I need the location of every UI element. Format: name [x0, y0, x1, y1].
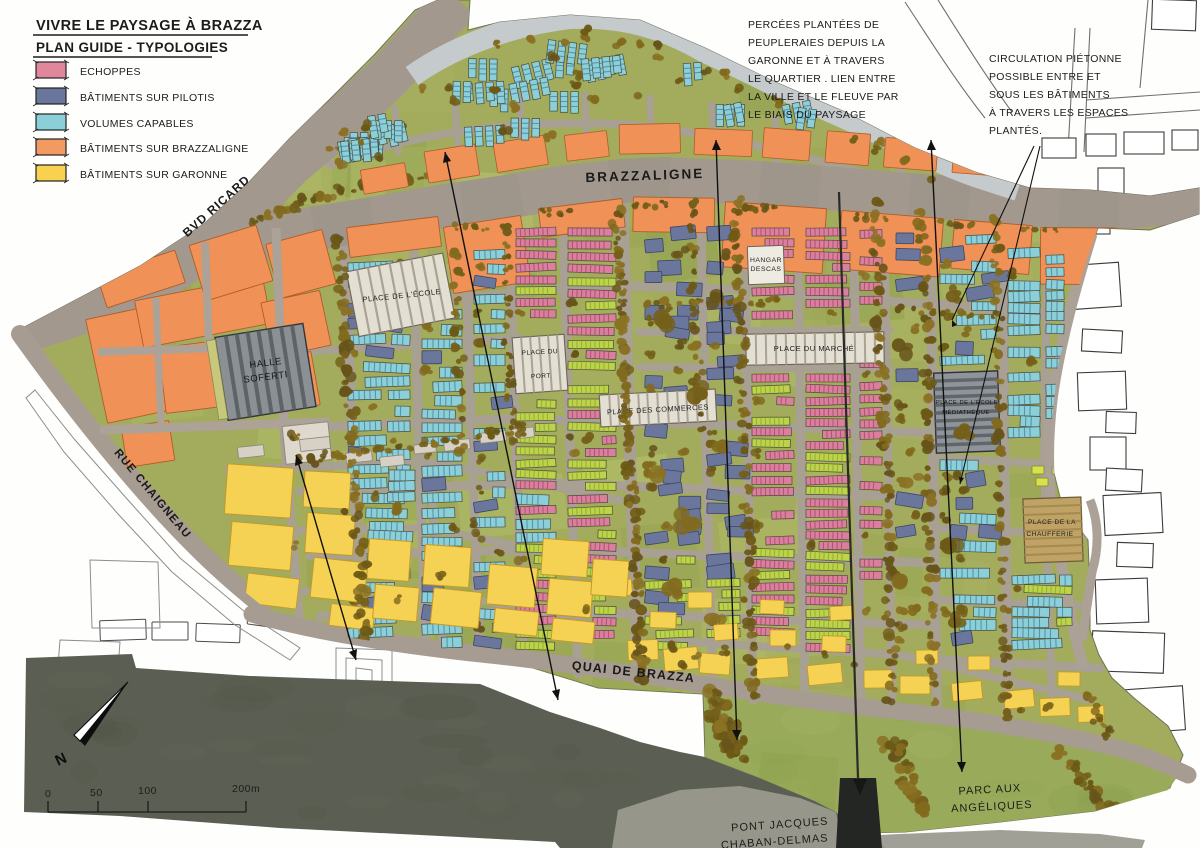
svg-text:50: 50: [90, 787, 103, 799]
svg-text:PLAN GUIDE - TYPOLOGIES: PLAN GUIDE - TYPOLOGIES: [36, 40, 228, 55]
svg-text:LE BIAIS DU PAYSAGE: LE BIAIS DU PAYSAGE: [748, 109, 866, 121]
svg-text:DESCAS: DESCAS: [751, 266, 782, 273]
svg-text:100: 100: [138, 785, 157, 797]
svg-text:BÂTIMENTS SUR BRAZZALIGNE: BÂTIMENTS SUR BRAZZALIGNE: [80, 142, 249, 155]
svg-text:PLACE DE L'ÉCOLE: PLACE DE L'ÉCOLE: [936, 399, 998, 406]
svg-text:VIVRE LE PAYSAGE À BRAZZA: VIVRE LE PAYSAGE À BRAZZA: [36, 17, 263, 34]
svg-text:VOLUMES CAPABLES: VOLUMES CAPABLES: [80, 118, 194, 130]
svg-text:SOUS LES BÂTIMENTS: SOUS LES BÂTIMENTS: [989, 88, 1110, 101]
svg-text:HANGAR: HANGAR: [750, 257, 782, 264]
svg-text:PORT: PORT: [531, 372, 551, 380]
svg-text:BÂTIMENTS SUR PILOTIS: BÂTIMENTS SUR PILOTIS: [80, 91, 215, 104]
svg-text:PLACE DU MARCHÉ: PLACE DU MARCHÉ: [774, 344, 855, 353]
svg-text:PLACE DE LA: PLACE DE LA: [1028, 519, 1076, 526]
svg-text:PLANTÉS.: PLANTÉS.: [989, 124, 1042, 137]
svg-text:LA VILLE ET LE FLEUVE PAR: LA VILLE ET LE FLEUVE PAR: [748, 91, 899, 103]
svg-text:0: 0: [45, 788, 51, 800]
svg-text:POSSIBLE ENTRE ET: POSSIBLE ENTRE ET: [989, 71, 1101, 83]
svg-text:LE QUARTIER . LIEN ENTRE: LE QUARTIER . LIEN ENTRE: [748, 73, 896, 85]
svg-text:CHAUFFERIE: CHAUFFERIE: [1026, 531, 1073, 538]
svg-text:CIRCULATION PIÉTONNE: CIRCULATION PIÉTONNE: [989, 52, 1122, 65]
svg-text:BÂTIMENTS SUR GARONNE: BÂTIMENTS SUR GARONNE: [80, 168, 227, 181]
svg-text:200m: 200m: [232, 783, 260, 795]
svg-text:GARONNE ET À TRAVERS: GARONNE ET À TRAVERS: [748, 54, 885, 67]
svg-text:PERCÉES PLANTÉES DE: PERCÉES PLANTÉES DE: [748, 18, 879, 31]
svg-text:PEUPLERAIES DEPUIS LA: PEUPLERAIES DEPUIS LA: [748, 37, 885, 49]
svg-text:ECHOPPES: ECHOPPES: [80, 66, 141, 78]
svg-text:À TRAVERS LES ESPACES: À TRAVERS LES ESPACES: [989, 106, 1128, 119]
svg-text:MÉDIATHÈQUE: MÉDIATHÈQUE: [942, 409, 990, 416]
